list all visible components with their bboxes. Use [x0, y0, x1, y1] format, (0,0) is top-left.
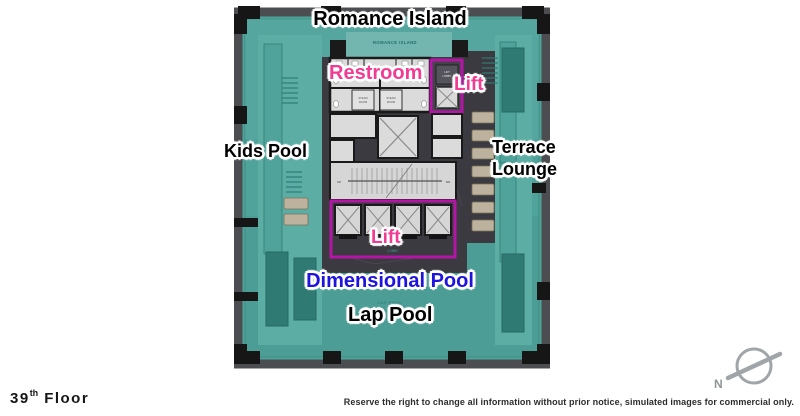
- stairs-dn-label: DN: [446, 180, 450, 184]
- kids-pool-deck: [258, 35, 322, 345]
- label-terrace-line1: Terrace: [492, 136, 557, 158]
- steam-room-2-label: STEAM: [386, 96, 396, 100]
- lift-lobby-label: LIFT: [444, 70, 450, 74]
- label-terrace-line2: Lounge: [492, 158, 557, 180]
- lift-lobby-label2: LOBBY: [443, 74, 452, 78]
- disclaimer-text: Reserve the right to change all informat…: [344, 397, 794, 407]
- lounge-chairs-right: [472, 112, 494, 231]
- lobby-plan-text: LOBBY: [388, 249, 400, 253]
- label-romance-island: Romance Island: [288, 8, 492, 31]
- floor-indicator: 39thFloor: [10, 389, 89, 407]
- label-lift-bottom: Lift: [371, 227, 401, 249]
- steam-room-1-label: STEAM: [358, 96, 368, 100]
- stairs-up-label: UP: [337, 180, 341, 184]
- label-lift-top: Lift: [454, 74, 484, 96]
- label-restroom: Restroom: [329, 62, 422, 85]
- label-dimensional-pool: Dimensional Pool: [298, 270, 482, 293]
- romance-island-plan-text: ROMANCE ISLAND: [373, 40, 417, 45]
- service-rooms: [330, 114, 462, 162]
- label-lap-pool: Lap Pool: [348, 304, 432, 327]
- compass: N: [710, 336, 790, 396]
- floor-number: 39: [10, 390, 30, 407]
- floor-ordinal: th: [30, 388, 39, 398]
- compass-north-label: N: [714, 377, 723, 391]
- stairs: UP DN: [330, 162, 456, 200]
- label-terrace-lounge: Terrace Lounge: [492, 136, 557, 180]
- floor-word: Floor: [44, 390, 89, 407]
- steam-room-1-label2: ROOM: [359, 100, 368, 104]
- steam-room-2-label2: ROOM: [387, 100, 396, 104]
- label-kids-pool: Kids Pool: [224, 141, 307, 162]
- floor-plan-page: TERRACE ROMANCE ISLAND: [0, 0, 800, 416]
- romance-island-bridge: ROMANCE ISLAND: [330, 32, 468, 58]
